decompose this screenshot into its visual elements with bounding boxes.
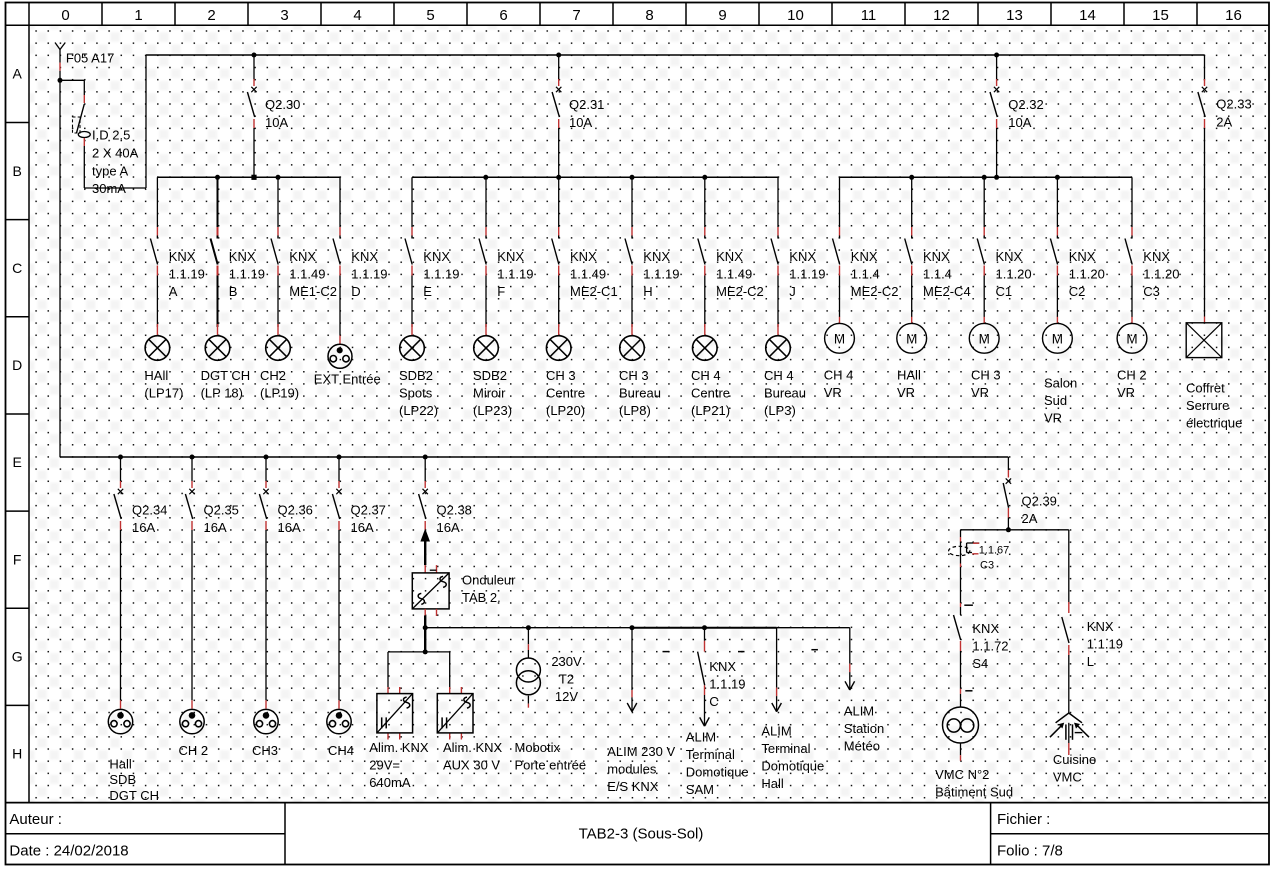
svg-text:C: C (12, 260, 22, 276)
svg-text:1.1.49: 1.1.49 (289, 266, 325, 281)
svg-text:1.1.19: 1.1.19 (1087, 637, 1123, 652)
svg-text:KNX: KNX (716, 249, 743, 264)
svg-text:16A: 16A (437, 520, 460, 535)
svg-text:VR: VR (824, 385, 842, 400)
svg-text:D: D (351, 284, 360, 299)
svg-text:B: B (13, 163, 22, 179)
svg-text:CH 3: CH 3 (546, 368, 576, 383)
svg-text:1.1.19: 1.1.19 (229, 266, 265, 281)
svg-text:VR: VR (1044, 411, 1062, 426)
svg-text:KNX: KNX (229, 249, 256, 264)
svg-text:F05 A17: F05 A17 (66, 51, 114, 66)
svg-text:7: 7 (572, 7, 580, 24)
svg-text:1.1.19: 1.1.19 (643, 266, 679, 281)
svg-text:HAll: HAll (144, 368, 168, 383)
svg-text:1.1.49: 1.1.49 (570, 266, 606, 281)
svg-text:J: J (789, 284, 796, 299)
svg-text:Alim. KNX: Alim. KNX (369, 740, 429, 755)
svg-text:Porte entrée: Porte entrée (515, 758, 587, 773)
svg-text:M: M (1126, 331, 1137, 346)
svg-text:KNX: KNX (923, 249, 950, 264)
svg-text:C2: C2 (1069, 284, 1086, 299)
svg-text:Alim. KNX: Alim. KNX (443, 740, 503, 755)
svg-text:TAB 2.: TAB 2. (462, 590, 501, 605)
svg-text:1.1.67: 1.1.67 (979, 545, 1010, 557)
svg-text:I.D 2.5: I.D 2.5 (92, 128, 130, 143)
svg-text:Centre: Centre (691, 386, 730, 401)
svg-text:Sud: Sud (1044, 393, 1067, 408)
svg-text:10A: 10A (265, 115, 288, 130)
svg-text:16A: 16A (278, 520, 301, 535)
svg-text:16: 16 (1225, 7, 1242, 24)
svg-text:Auteur :: Auteur : (9, 811, 62, 828)
svg-text:Q2.34: Q2.34 (132, 503, 167, 518)
svg-text:640mA: 640mA (369, 775, 411, 790)
svg-text:1.1.4: 1.1.4 (851, 266, 880, 281)
svg-text:(LP19): (LP19) (260, 386, 299, 401)
svg-text:F: F (497, 284, 505, 299)
svg-text:(LP8): (LP8) (619, 403, 651, 418)
svg-text:A: A (13, 66, 23, 82)
svg-text:(LP 18): (LP 18) (201, 386, 243, 401)
svg-text:A: A (169, 284, 178, 299)
svg-text:16A: 16A (204, 520, 227, 535)
svg-text:HAll: HAll (897, 368, 921, 383)
svg-text:Cuisine: Cuisine (1053, 752, 1096, 767)
svg-text:Domotique: Domotique (761, 759, 824, 774)
svg-text:Date : 24/02/2018: Date : 24/02/2018 (9, 843, 128, 860)
svg-text:Fichier :: Fichier : (997, 811, 1050, 828)
svg-text:2 X 40A: 2 X 40A (92, 145, 139, 160)
svg-text:10A: 10A (1008, 115, 1031, 130)
svg-text:Q2.32: Q2.32 (1008, 97, 1043, 112)
svg-text:KNX: KNX (570, 249, 597, 264)
svg-text:H: H (12, 746, 22, 762)
svg-text:CH 4: CH 4 (824, 368, 854, 383)
svg-text:Q2.33: Q2.33 (1216, 97, 1251, 112)
svg-text:1.1.19: 1.1.19 (497, 266, 533, 281)
svg-text:(LP21): (LP21) (691, 403, 730, 418)
svg-text:Q2.36: Q2.36 (278, 503, 313, 518)
svg-text:16A: 16A (132, 520, 155, 535)
svg-text:KNX: KNX (423, 249, 450, 264)
svg-text:KNX: KNX (1143, 249, 1170, 264)
svg-text:Bureau: Bureau (619, 386, 661, 401)
svg-text:1.1.4: 1.1.4 (923, 266, 952, 281)
svg-text:10: 10 (787, 7, 804, 24)
svg-text:2A: 2A (1216, 114, 1232, 129)
svg-text:SAM: SAM (686, 782, 714, 797)
svg-text:type A: type A (92, 163, 128, 178)
svg-text:1.1.20: 1.1.20 (996, 266, 1032, 281)
svg-text:(LP23): (LP23) (473, 403, 512, 418)
svg-text:KNX: KNX (497, 249, 524, 264)
svg-text:KNX: KNX (1087, 619, 1114, 634)
svg-text:1.1.19: 1.1.19 (789, 266, 825, 281)
svg-text:G: G (12, 649, 23, 665)
svg-text:CH 2: CH 2 (1117, 368, 1147, 383)
svg-text:Domotique: Domotique (686, 765, 749, 780)
svg-text:1.1.19: 1.1.19 (351, 266, 387, 281)
svg-text:16A: 16A (351, 520, 374, 535)
svg-text:6: 6 (499, 7, 507, 24)
svg-text:230V: 230V (551, 654, 582, 669)
svg-text:T2: T2 (559, 671, 574, 686)
svg-text:Q2.39: Q2.39 (1022, 494, 1057, 509)
svg-text:Q2.30: Q2.30 (265, 97, 300, 112)
svg-text:1.1.72: 1.1.72 (972, 638, 1008, 653)
svg-text:EXT Entrée: EXT Entrée (314, 371, 381, 386)
svg-text:M: M (1052, 331, 1063, 346)
svg-text:KNX: KNX (996, 249, 1023, 264)
svg-text:Serrure: Serrure (1186, 398, 1229, 413)
svg-text:modules: modules (607, 762, 657, 777)
svg-text:AUX 30 V: AUX 30 V (443, 758, 500, 773)
svg-text:CH2: CH2 (260, 368, 286, 383)
svg-text:Bureau: Bureau (764, 386, 806, 401)
svg-text:Terminal: Terminal (761, 741, 810, 756)
svg-text:C3: C3 (1143, 284, 1160, 299)
svg-text:Coffret: Coffret (1186, 380, 1225, 395)
svg-text:TAB2-3 (Sous-Sol): TAB2-3 (Sous-Sol) (579, 826, 704, 843)
svg-text:14: 14 (1079, 7, 1096, 24)
svg-text:1: 1 (134, 7, 142, 24)
svg-text:13: 13 (1006, 7, 1023, 24)
svg-text:4: 4 (353, 7, 361, 24)
svg-text:ALIM: ALIM (844, 703, 874, 718)
svg-text:KNX: KNX (169, 249, 196, 264)
svg-text:KNX: KNX (851, 249, 878, 264)
svg-text:M: M (979, 331, 990, 346)
svg-text:Bâtiment Sud: Bâtiment Sud (935, 785, 1013, 800)
svg-text:2: 2 (207, 7, 215, 24)
svg-text:KNX: KNX (351, 249, 378, 264)
svg-text:Terminal: Terminal (686, 747, 735, 762)
svg-text:9: 9 (718, 7, 726, 24)
svg-text:CH 3: CH 3 (971, 368, 1001, 383)
svg-text:VMC: VMC (1053, 770, 1082, 785)
svg-text:30mA: 30mA (92, 181, 126, 196)
svg-text:ALIM: ALIM (761, 724, 791, 739)
svg-text:L: L (1087, 654, 1094, 669)
svg-text:1.1.19: 1.1.19 (169, 266, 205, 281)
svg-text:1.1.19: 1.1.19 (709, 676, 745, 691)
svg-text:1.1.49: 1.1.49 (716, 266, 752, 281)
svg-text:Onduleur: Onduleur (462, 573, 516, 588)
svg-text:M: M (906, 331, 917, 346)
svg-text:1.1.19: 1.1.19 (423, 266, 459, 281)
svg-text:KNX: KNX (289, 249, 316, 264)
svg-text:Q2.31: Q2.31 (569, 97, 604, 112)
svg-text:ME1-C2: ME1-C2 (289, 284, 337, 299)
svg-text:VR: VR (971, 385, 989, 400)
svg-text:S4: S4 (972, 656, 988, 671)
svg-text:CH 4: CH 4 (764, 368, 794, 383)
svg-text:Spots: Spots (399, 386, 433, 401)
svg-text:Mobotix: Mobotix (515, 740, 561, 755)
svg-text:E/S KNX: E/S KNX (607, 779, 659, 794)
svg-text:10A: 10A (569, 115, 592, 130)
svg-text:Q2.37: Q2.37 (351, 503, 386, 518)
svg-text:Miroir: Miroir (473, 386, 506, 401)
svg-text:Folio : 7/8: Folio : 7/8 (997, 843, 1063, 860)
svg-text:Météo: Météo (844, 738, 880, 753)
svg-text:(LP20): (LP20) (546, 403, 585, 418)
svg-text:15: 15 (1152, 7, 1169, 24)
svg-text:SDB2: SDB2 (399, 368, 433, 383)
svg-text:KNX: KNX (1069, 249, 1096, 264)
svg-text:Q2.35: Q2.35 (204, 503, 239, 518)
svg-text:5: 5 (426, 7, 434, 24)
svg-text:KNX: KNX (709, 659, 736, 674)
svg-text:C: C (709, 694, 718, 709)
svg-text:ALIM 230 V: ALIM 230 V (607, 744, 675, 759)
svg-text:ME2-C2: ME2-C2 (851, 284, 899, 299)
svg-text:12: 12 (933, 7, 950, 24)
svg-text:VR: VR (897, 385, 915, 400)
svg-text:1.1.20: 1.1.20 (1069, 266, 1105, 281)
svg-text:CH4: CH4 (328, 743, 354, 758)
svg-text:électrique: électrique (1186, 415, 1242, 430)
svg-text:2A: 2A (1022, 511, 1038, 526)
svg-text:ME2-C4: ME2-C4 (923, 284, 971, 299)
svg-text:CH 2: CH 2 (179, 743, 209, 758)
svg-text:12V: 12V (555, 689, 578, 704)
svg-text:B: B (229, 284, 238, 299)
svg-text:11: 11 (861, 7, 877, 24)
svg-text:ALIM: ALIM (686, 730, 716, 745)
svg-text:0: 0 (61, 7, 69, 24)
svg-text:CH 4: CH 4 (691, 368, 721, 383)
svg-text:Centre: Centre (546, 386, 585, 401)
svg-text:M: M (834, 331, 845, 346)
svg-text:Q2.38: Q2.38 (437, 503, 472, 518)
svg-text:29V=: 29V= (369, 758, 400, 773)
svg-text:H: H (643, 284, 652, 299)
svg-text:C1: C1 (996, 284, 1013, 299)
svg-text:VR: VR (1117, 385, 1135, 400)
svg-text:ME2-C1: ME2-C1 (570, 284, 618, 299)
svg-text:DGT CH: DGT CH (201, 368, 251, 383)
svg-text:SDB2: SDB2 (473, 368, 507, 383)
svg-text:Hall: Hall (761, 776, 784, 791)
svg-text:CH3: CH3 (252, 743, 278, 758)
svg-text:KNX: KNX (972, 621, 999, 636)
svg-text:CH 3: CH 3 (619, 368, 649, 383)
svg-text:VMC N°2: VMC N°2 (935, 767, 989, 782)
svg-text:D: D (12, 357, 22, 373)
svg-text:1.1.20: 1.1.20 (1143, 266, 1179, 281)
svg-text:DGT CH: DGT CH (109, 788, 159, 803)
svg-text:(LP3): (LP3) (764, 403, 796, 418)
svg-text:(LP17): (LP17) (144, 386, 183, 401)
svg-text:3: 3 (280, 7, 288, 24)
svg-text:C3: C3 (980, 560, 994, 572)
svg-text:E: E (423, 284, 432, 299)
svg-text:ME2-C2: ME2-C2 (716, 284, 764, 299)
svg-text:(LP22): (LP22) (399, 403, 438, 418)
svg-text:E: E (13, 454, 22, 470)
svg-text:KNX: KNX (789, 249, 816, 264)
svg-text:Station: Station (844, 721, 884, 736)
svg-text:F: F (13, 551, 22, 567)
svg-text:Salon: Salon (1044, 376, 1077, 391)
svg-text:8: 8 (645, 7, 653, 24)
svg-text:SDB: SDB (109, 772, 136, 787)
svg-text:KNX: KNX (643, 249, 670, 264)
svg-text:Hall: Hall (109, 756, 132, 771)
